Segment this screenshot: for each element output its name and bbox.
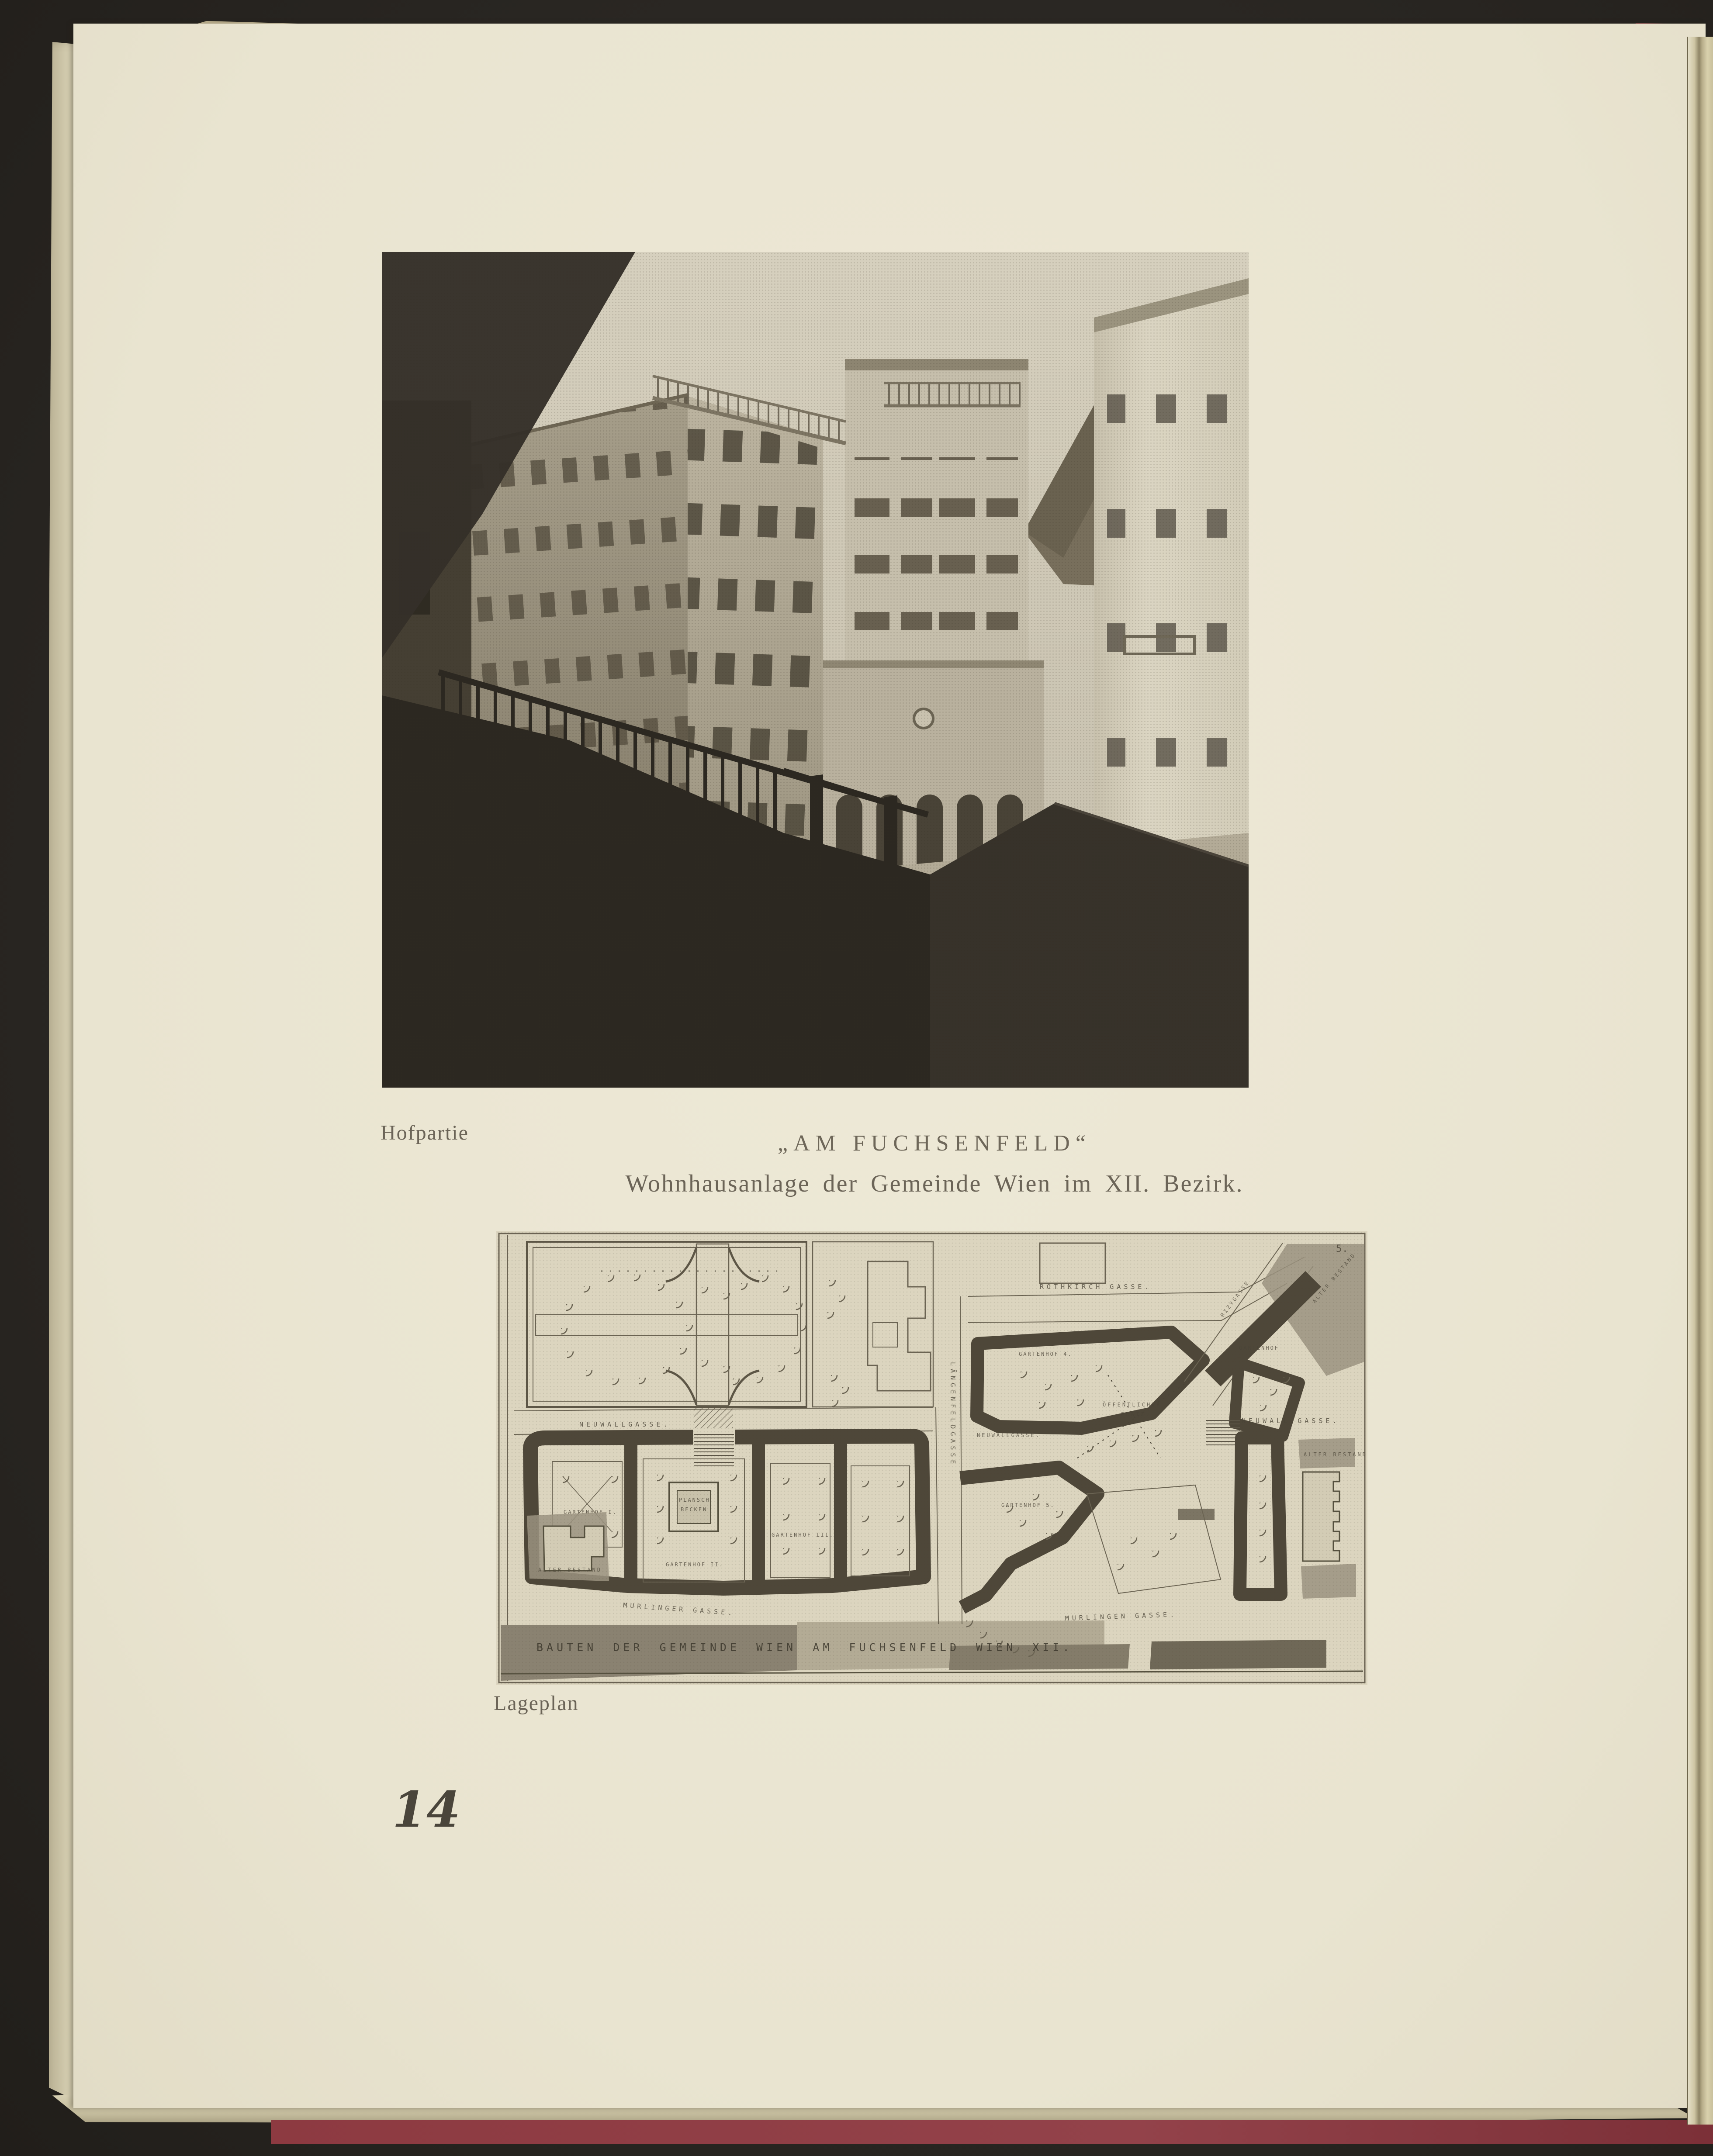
page-subtitle: Wohnhausanlage der Gemeinde Wien im XII.… (382, 1170, 1487, 1198)
plan-alter-bestand-left: ALTER BESTAND (527, 1512, 609, 1581)
label-planschbecken-1: PLANSCH (679, 1497, 710, 1503)
plan-plate-number: 5. (1336, 1244, 1349, 1254)
plan-old-building (1303, 1472, 1339, 1561)
label-neuwallgasse-inner: NEUWALLGASSE. (977, 1432, 1041, 1438)
site-plan: NEUWALLGASSE. GARTENHOF I. (496, 1231, 1367, 1685)
page-title: „AM FUCHSENFELD“ (382, 1130, 1487, 1156)
photo-illustration (382, 252, 1249, 1088)
label-neuwallgasse-left: NEUWALLGASSE. (579, 1420, 670, 1428)
page-deckle-edge (1687, 37, 1713, 2125)
label-planschbecken-2: BECKEN (681, 1506, 707, 1513)
label-gartenhof-5: GARTENHOF 5. (1001, 1502, 1055, 1508)
label-gartenhof-2: GARTENHOF II. (666, 1562, 724, 1568)
label-platz-2: PLATZ. (1121, 1411, 1150, 1417)
label-rothkirchgasse: ROTHKIRCH GASSE. (1040, 1283, 1152, 1291)
plan-stairs-right (1206, 1418, 1240, 1447)
label-alter-bestand-left: ALTER BESTAND (538, 1567, 602, 1573)
label-laengenfeldgasse: LÄNGENFELDGASSE (949, 1362, 957, 1467)
label-gartenhof-4: GARTENHOF 4. (1019, 1351, 1073, 1357)
label-neuwallgasse-right: NEUWALL GASSE. (1242, 1417, 1339, 1425)
label-platz-1: ÖFFENTLICHER (1103, 1401, 1162, 1408)
page-number: 14 (392, 1781, 460, 1838)
label-gartenhof-3: GARTENHOF III. (772, 1532, 834, 1538)
photo-clock (914, 709, 933, 728)
book-cover-red-bottom (271, 2120, 1713, 2144)
plan-caption-text: BAUTEN DER GEMEINDE WIEN AM FUCHSENFELD … (536, 1641, 1073, 1654)
label-alter-bestand-east: ALTER BESTAND (1304, 1451, 1367, 1458)
site-plan-drawing: NEUWALLGASSE. GARTENHOF I. (496, 1231, 1367, 1685)
book-scan: Hofpartie „AM FUCHSENFELD“ Wohnhausanlag… (0, 0, 1713, 2156)
plan-caption: Lageplan (494, 1691, 579, 1715)
courtyard-photograph (382, 252, 1249, 1088)
label-gartenhof-6: GARTENHOF (1239, 1345, 1279, 1351)
